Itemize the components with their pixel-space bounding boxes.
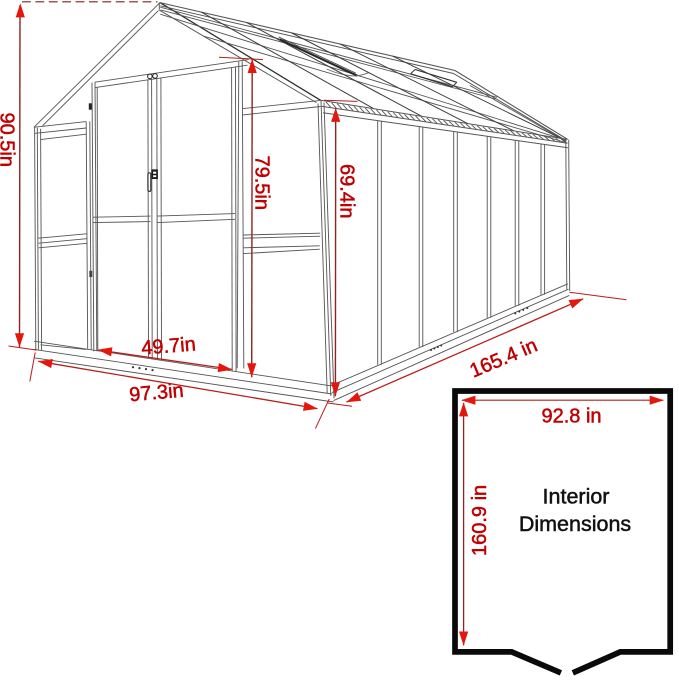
svg-text:165.4 in: 165.4 in: [467, 334, 541, 382]
svg-text:Interior: Interior: [543, 485, 610, 509]
svg-text:69.4in: 69.4in: [336, 164, 358, 219]
svg-text:Dimensions: Dimensions: [519, 512, 631, 536]
svg-text:79.5in: 79.5in: [251, 156, 273, 211]
svg-text:92.8 in: 92.8 in: [541, 406, 601, 428]
svg-text:49.7in: 49.7in: [141, 333, 197, 359]
svg-text:90.5in: 90.5in: [0, 113, 18, 168]
svg-text:97.3in: 97.3in: [128, 380, 184, 407]
svg-text:160.9 in: 160.9 in: [469, 485, 491, 556]
